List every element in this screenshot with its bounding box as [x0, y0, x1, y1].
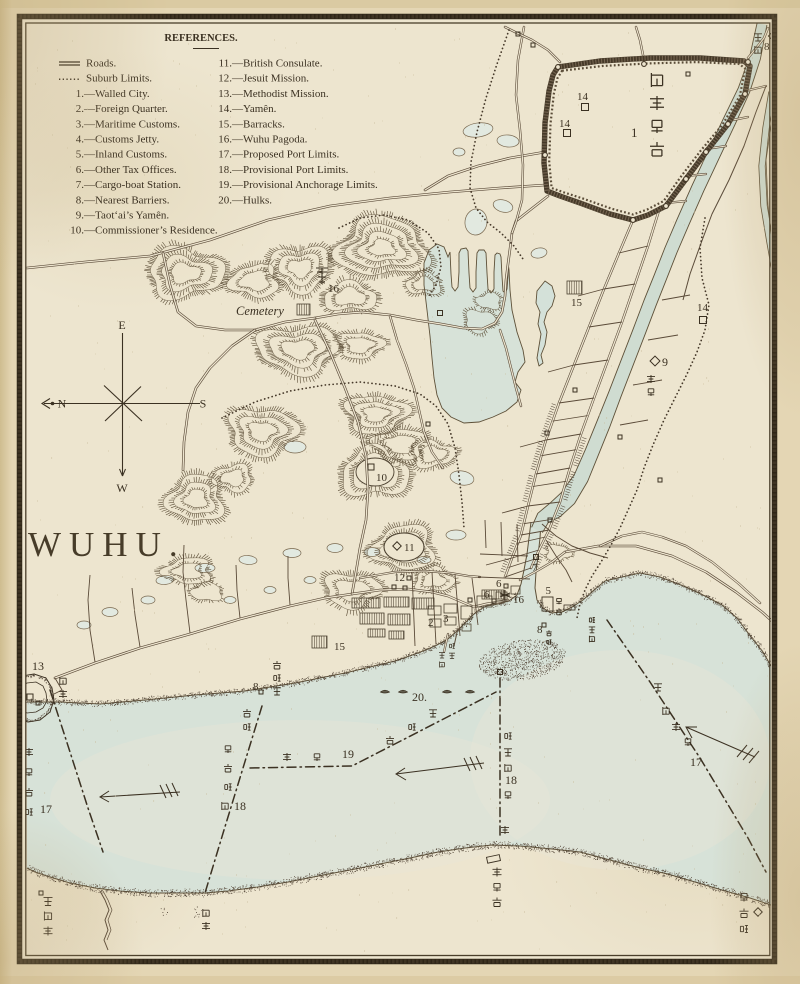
svg-text:14: 14	[697, 302, 709, 314]
svg-text:—Provisional Anchorage Limits.: —Provisional Anchorage Limits.	[231, 179, 378, 191]
svg-text:11.: 11.	[219, 58, 233, 70]
svg-text:2: 2	[428, 617, 434, 629]
svg-text:10: 10	[376, 472, 388, 484]
svg-text:9: 9	[662, 355, 668, 369]
svg-text:12.: 12.	[218, 73, 232, 85]
svg-text:12: 12	[394, 572, 405, 584]
svg-text:14.: 14.	[218, 103, 232, 115]
svg-text:15: 15	[571, 297, 583, 309]
svg-text:15: 15	[334, 641, 346, 653]
svg-text:REFERENCES.: REFERENCES.	[164, 33, 238, 44]
svg-text:16.: 16.	[218, 134, 232, 146]
svg-text:—Proposed Port Limits.: —Proposed Port Limits.	[231, 149, 340, 161]
svg-text:Cemetery: Cemetery	[236, 304, 284, 318]
svg-text:16: 16	[513, 594, 525, 606]
svg-text:17: 17	[40, 802, 52, 816]
svg-text:3: 3	[443, 613, 449, 625]
svg-text:14: 14	[577, 91, 589, 103]
svg-text:E: E	[118, 318, 125, 332]
svg-text:18: 18	[505, 773, 517, 787]
svg-text:11: 11	[404, 542, 415, 554]
svg-text:N: N	[58, 397, 67, 411]
svg-text:5: 5	[546, 585, 552, 597]
svg-text:20.: 20.	[412, 690, 427, 704]
svg-text:17.: 17.	[218, 149, 232, 161]
svg-text:15.: 15.	[218, 118, 232, 130]
svg-text:S: S	[200, 397, 207, 411]
svg-text:19: 19	[342, 747, 354, 761]
svg-text:WUHU.: WUHU.	[28, 525, 186, 564]
svg-text:19.: 19.	[218, 179, 232, 191]
svg-text:18.: 18.	[218, 164, 232, 176]
svg-text:16: 16	[328, 283, 340, 295]
svg-text:20.: 20.	[218, 194, 232, 206]
svg-text:—Wuhu Pagoda.: —Wuhu Pagoda.	[231, 134, 308, 146]
svg-text:14: 14	[559, 118, 571, 130]
svg-text:W: W	[116, 481, 128, 495]
svg-text:1: 1	[631, 125, 638, 140]
svg-text:6: 6	[496, 578, 502, 590]
svg-text:—Provisional Port Limits.: —Provisional Port Limits.	[231, 164, 349, 176]
svg-text:—British Consulate.: —British Consulate.	[231, 58, 323, 70]
svg-text:18: 18	[234, 799, 246, 813]
svg-text:—Methodist Mission.: —Methodist Mission.	[231, 88, 329, 100]
svg-text:6: 6	[484, 589, 490, 601]
svg-text:—Jesuit Mission.: —Jesuit Mission.	[231, 73, 309, 85]
svg-text:17: 17	[690, 755, 702, 769]
svg-text:—Hulks.: —Hulks.	[231, 194, 272, 206]
svg-text:13: 13	[32, 659, 44, 673]
svg-text:—Yamên.: —Yamên.	[231, 103, 277, 115]
svg-text:7: 7	[532, 562, 538, 574]
svg-text:8: 8	[253, 681, 259, 693]
svg-text:—Barracks.: —Barracks.	[231, 118, 285, 130]
svg-text:13.: 13.	[218, 88, 232, 100]
